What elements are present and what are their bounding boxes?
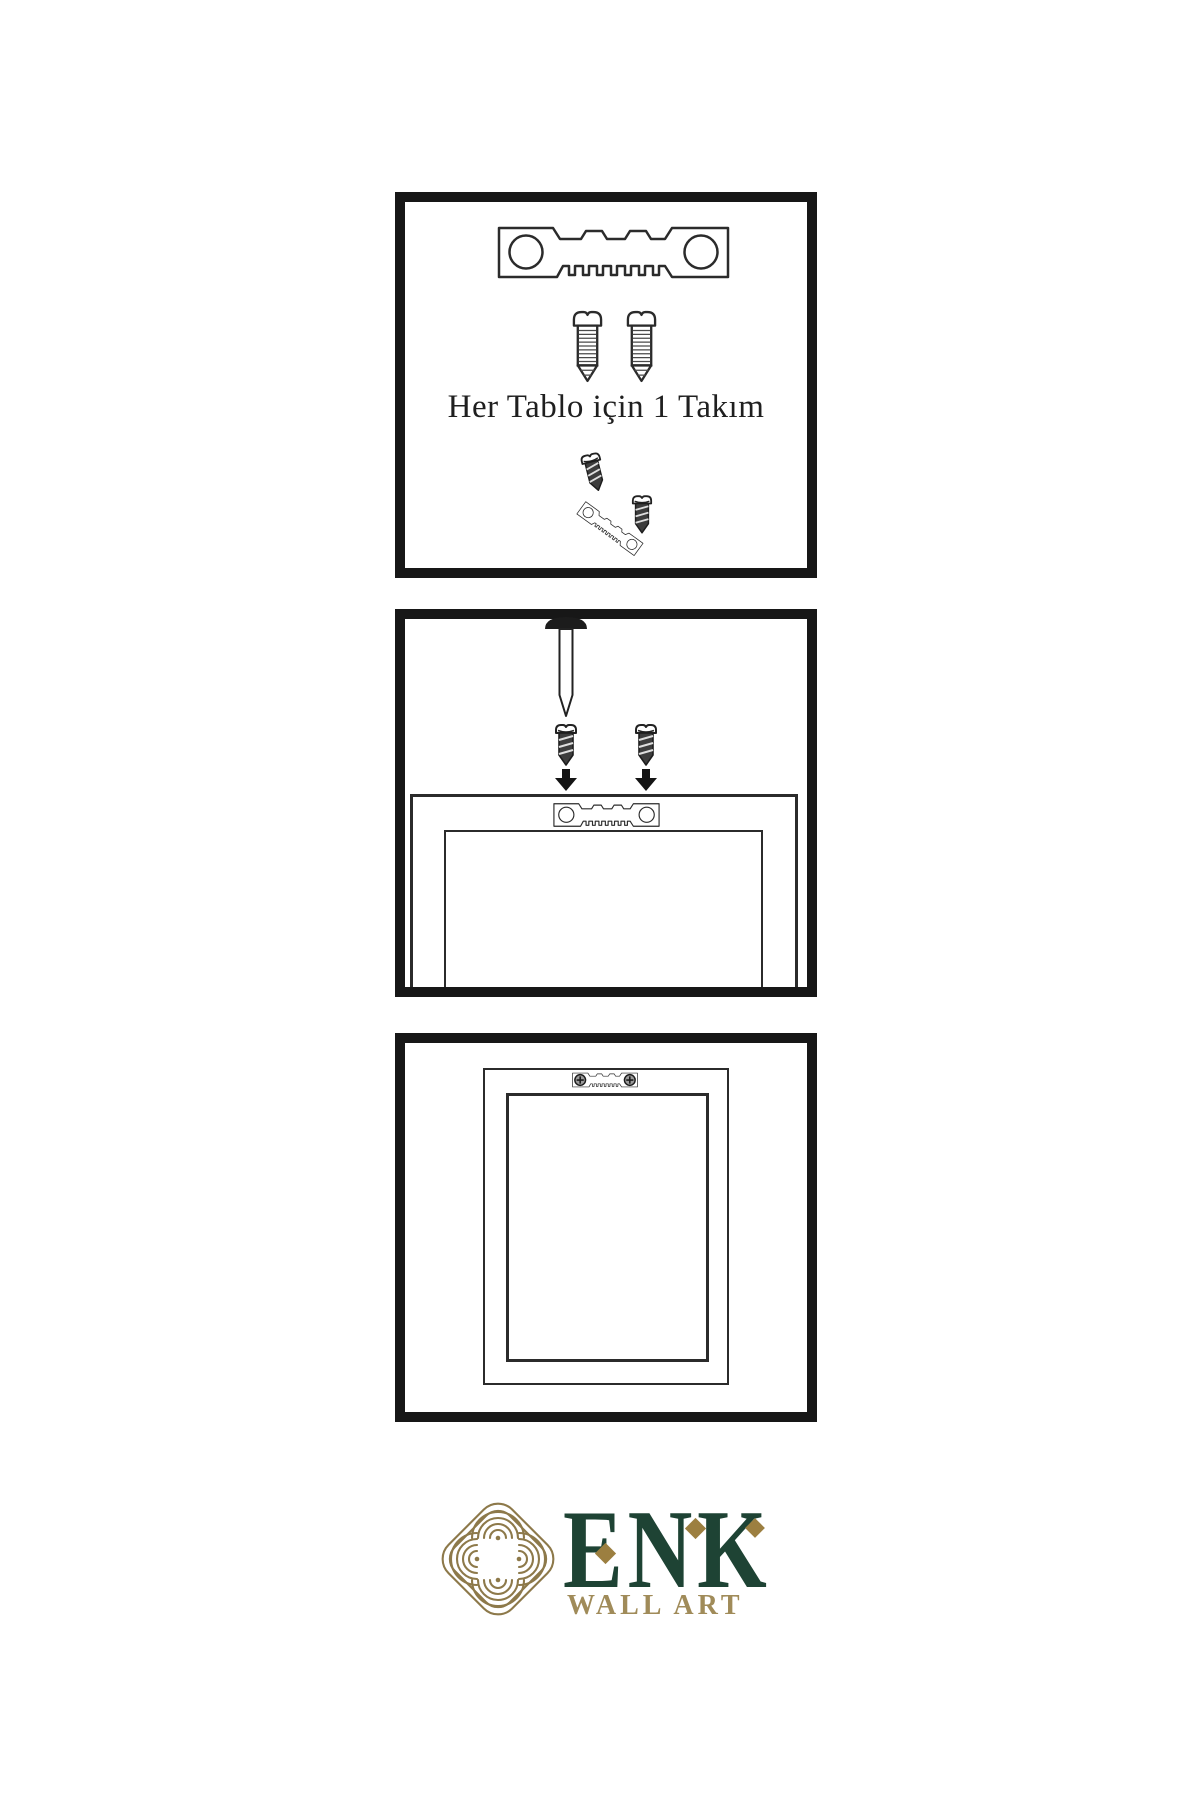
page: { "sheet": { "background": "#ffffff", "c… (0, 0, 1200, 1800)
frame-back-inner-edge (444, 830, 763, 987)
screw-icon (571, 308, 604, 384)
step-panel-hung-frame (395, 1033, 817, 1422)
tilted-hanger-icon (573, 484, 669, 556)
picture-frame-inner (506, 1093, 709, 1362)
screw-dark-icon (554, 723, 578, 767)
step-panel-mounting (395, 609, 817, 997)
screw-icon (625, 308, 658, 384)
sawtooth-hanger-icon (497, 225, 730, 280)
brand-subtitle: WALL ART (567, 1592, 744, 1620)
mounted-hanger-icon (553, 802, 660, 828)
hanger-with-screws-icon (572, 1072, 638, 1089)
step-panel-hardware-kit: Her Tablo için 1 Takım (395, 192, 817, 578)
arrow-down-icon (554, 769, 578, 791)
screw-dark-icon (634, 723, 658, 767)
arrow-down-icon (634, 769, 658, 791)
kit-caption: Her Tablo için 1 Takım (405, 391, 807, 424)
screw-dark-icon (631, 494, 653, 535)
nail-icon (544, 616, 588, 718)
interlaced-knot-icon (433, 1488, 563, 1630)
